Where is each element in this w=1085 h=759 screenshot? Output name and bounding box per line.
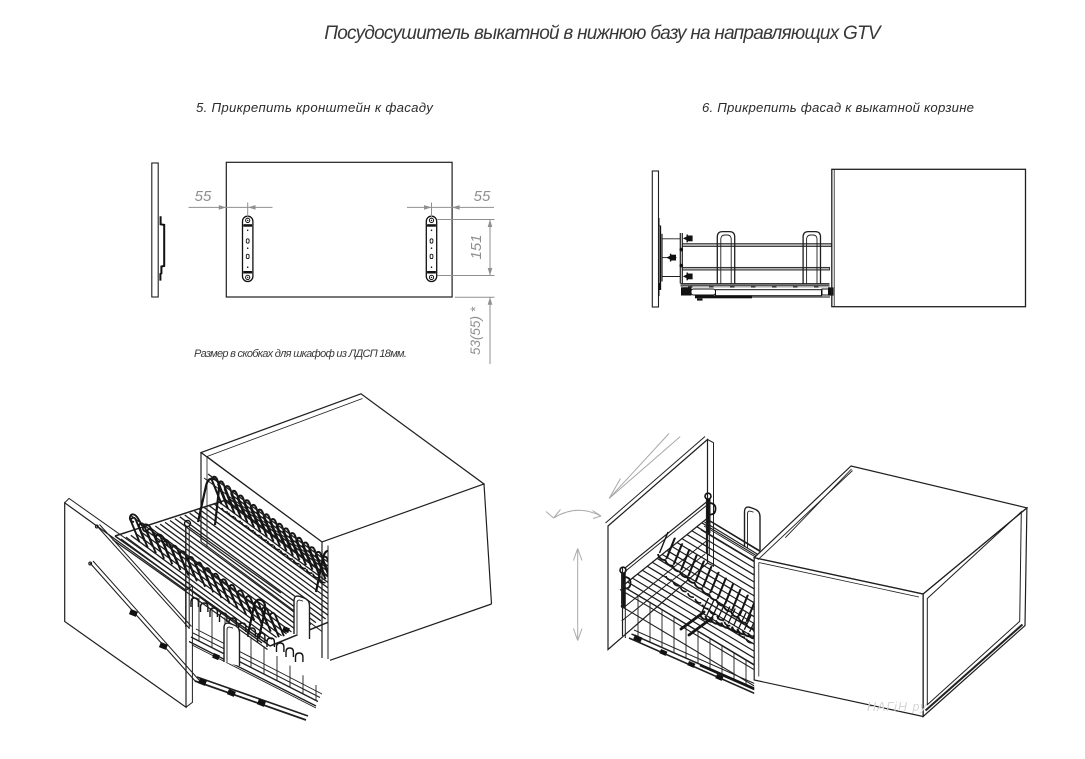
svg-text:5. Прикрепить кронштейн к фаса: 5. Прикрепить кронштейн к фасаду [196,100,434,115]
svg-text:55: 55 [195,188,212,205]
svg-text:151: 151 [468,234,485,259]
svg-text:6. Прикрепить фасад к выкатной: 6. Прикрепить фасад к выкатной корзине [702,100,974,115]
svg-text:НАГіН ру: НАГіН ру [867,700,927,714]
svg-text:Посудосушитель выкатной в нижн: Посудосушитель выкатной в нижнюю базу на… [324,23,883,44]
svg-text:Размер в скобках для шкафоф из: Размер в скобках для шкафоф из ЛДСП 18мм… [194,348,406,360]
svg-text:53(55) *: 53(55) * [468,306,483,355]
svg-text:55: 55 [474,188,491,205]
